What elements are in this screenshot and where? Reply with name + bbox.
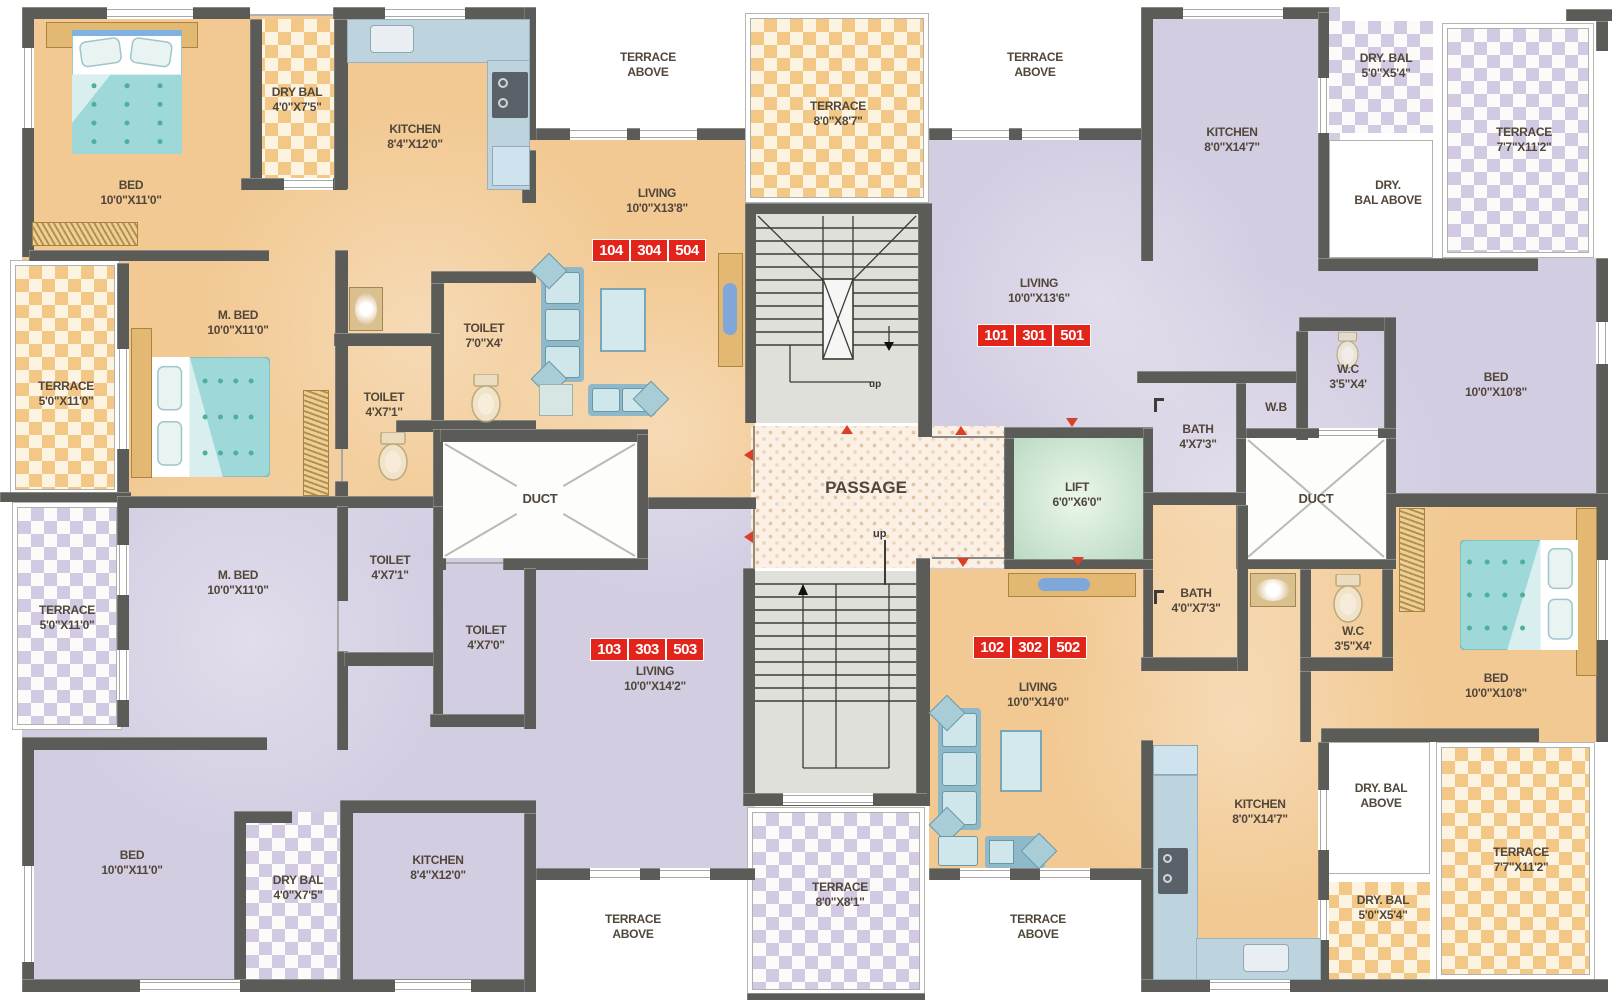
svg-text:up: up xyxy=(869,379,881,390)
